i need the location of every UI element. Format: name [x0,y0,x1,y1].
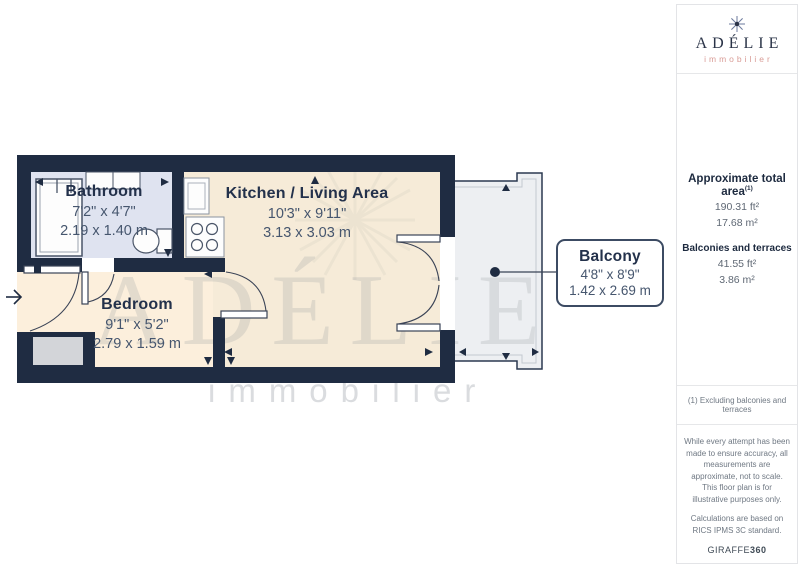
french-door-arc-bottom [398,285,439,324]
balconies-ft: 41.55 ft² [718,258,757,270]
walls [17,155,455,383]
wall-mid-b [114,258,225,272]
arrow-right-icon [161,178,169,186]
balconies-label: Balconies and terraces [682,243,792,254]
kitchen-fixtures [184,178,224,257]
french-door-leaf-bottom [397,324,440,331]
total-area-ft: 190.31 ft² [715,201,759,213]
niche-block [17,332,95,368]
bedroom-door-arc [226,272,266,311]
doors [24,235,440,331]
wall-right-upper [440,172,455,237]
stove-icon [186,217,224,257]
arrow-left-icon [35,178,43,186]
balcony-leader-dot [490,267,500,277]
arrow-up-icon [502,184,510,191]
wall-left [17,172,31,272]
toilet-bowl-icon [133,229,159,253]
disclaimer-text: While every attempt has been made to ens… [684,436,790,505]
room-dim-metric: 2.19 x 1.40 m [60,223,148,239]
total-area-label: Approximate total area(1) [677,173,797,198]
immobilier-watermark: immobilier [208,372,488,410]
arrow-down-icon [204,357,212,365]
room-dim-imperial: 4'8" x 8'9" [580,267,639,282]
room-dim-metric: 1.42 x 2.69 m [569,283,651,298]
bathroom-floor [31,172,172,258]
french-door-arc-top [398,242,439,281]
vanity-sink-icon [86,172,140,189]
niche-recess [33,337,83,365]
room-name: Bedroom [93,296,181,314]
footnote-ref: (1) [745,185,753,192]
balcony-callout: Balcony 4'8" x 8'9" 1.42 x 2.69 m [556,239,664,307]
kitchen-label: Kitchen / Living Area 10'3" x 9'11" 3.13… [226,185,389,241]
wall-bath-kitchen [172,172,184,258]
arrow-down-icon [227,357,235,365]
arrow-up-icon [311,176,319,184]
french-door-opening [440,237,455,330]
arrow-down-icon [502,353,510,360]
bathroom-door-arc [88,274,114,302]
bedroom-door-leaf [221,311,267,318]
entry-door-leaf [24,266,80,273]
arrow-right-icon [425,348,433,356]
arrow-left-icon [224,348,232,356]
brand-logo: ADÉLIE immobilier [677,5,797,74]
entry-arrow [6,290,21,304]
bathroom-fixtures [36,172,172,256]
room-name: Kitchen / Living Area [226,185,389,203]
standard-note: Calculations are based on RICS IPMS 3C s… [684,513,790,536]
room-dim-metric: 2.79 x 1.59 m [93,336,181,352]
shower-inner-line [40,183,78,252]
arrow-down-icon [164,249,172,257]
wall-right-lower [440,330,455,367]
arrow-right-icon [532,348,539,356]
wall-bedroom-living [213,317,225,367]
adelie-watermark: ADÉLIE [92,252,556,369]
room-name: Balcony [579,248,641,266]
balcony-railing-inner [455,179,536,363]
room-name: Bathroom [60,183,148,201]
total-area-m: 17.68 m² [716,217,757,229]
wall-top [17,155,455,172]
entry-door-hinge [34,265,41,273]
balcony-floor [455,173,542,369]
arrow-left-icon [459,348,466,356]
balcony-railing-outer [455,173,542,369]
toilet-tank-icon [157,229,172,253]
balconies-m: 3.86 m² [719,274,755,286]
provider-brand: GIRAFFE360 [684,545,790,555]
footnote-text: (1) Excluding balconies and terraces [683,396,791,414]
dimension-arrows [35,176,539,365]
snowflake-icon [728,15,746,33]
bathroom-label: Bathroom 7'2" x 4'7" 2.19 x 1.40 m [60,183,148,239]
kitchen-floor [184,172,440,367]
room-dim-imperial: 7'2" x 4'7" [60,204,148,220]
arrow-left-icon [204,270,212,278]
disclaimer-section: While every attempt has been made to ens… [677,425,797,563]
brand-subtitle: immobilier [701,54,773,64]
kitchen-sink-icon [184,178,209,214]
brand-name: ADÉLIE [691,35,784,53]
room-dim-imperial: 9'1" x 5'2" [93,317,181,333]
area-summary: Approximate total area(1) 190.31 ft² 17.… [677,74,797,385]
bedroom-label: Bedroom 9'1" x 5'2" 2.79 x 1.59 m [93,296,181,352]
snowflake-watermark [290,155,420,285]
bedroom-floor [17,272,213,367]
wall-bottom [17,367,455,383]
room-dim-imperial: 10'3" x 9'11" [226,206,389,222]
wall-mid-a [17,258,82,272]
floorplan-page: ADÉLIE immobilier [0,0,800,566]
room-dim-metric: 3.13 x 3.03 m [226,225,389,241]
footnote-section: (1) Excluding balconies and terraces [677,385,797,425]
info-sidebar: ADÉLIE immobilier Approximate total area… [676,4,798,564]
entry-door-arc [30,273,79,331]
shower-icon [36,179,82,256]
french-door-leaf-top [397,235,440,242]
bathroom-door-leaf [82,272,88,304]
